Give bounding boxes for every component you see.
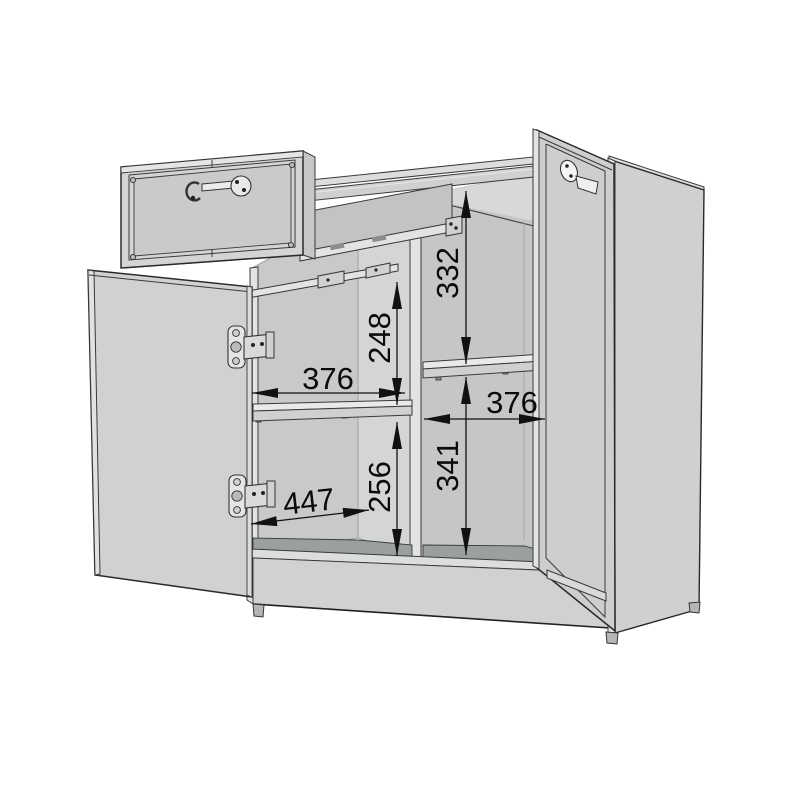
diagram-canvas: 332 248 376 376 341 256 447 <box>0 0 800 800</box>
dim-label-right-width: 376 <box>486 385 538 420</box>
right-door-left-edge <box>533 129 539 569</box>
left-door-right-edge <box>247 286 252 597</box>
front-left-foot <box>253 604 264 617</box>
right-side-panel <box>606 156 704 644</box>
drawer-front-inner-panel <box>134 164 291 256</box>
dim-label-depth: 447 <box>281 481 336 522</box>
dim-label-left-lower: 256 <box>362 461 397 513</box>
middle-partition-front-edge <box>410 190 421 560</box>
right-door <box>533 129 615 631</box>
dim-label-left-width: 376 <box>302 361 354 396</box>
left-door <box>88 270 252 597</box>
left-door-inner-face <box>88 270 252 597</box>
back-right-foot <box>689 602 700 613</box>
cabinet-dimension-drawing: 332 248 376 376 341 256 447 <box>0 0 800 800</box>
right-door-back-face <box>537 130 615 631</box>
front-right-foot <box>606 632 618 644</box>
drawer-front-right-cap <box>303 151 315 259</box>
dim-label-left-upper: 248 <box>362 312 397 364</box>
right-panel-outer-face <box>614 161 704 633</box>
dim-label-right-upper: 332 <box>430 247 465 299</box>
dim-label-right-lower: 341 <box>430 440 465 492</box>
